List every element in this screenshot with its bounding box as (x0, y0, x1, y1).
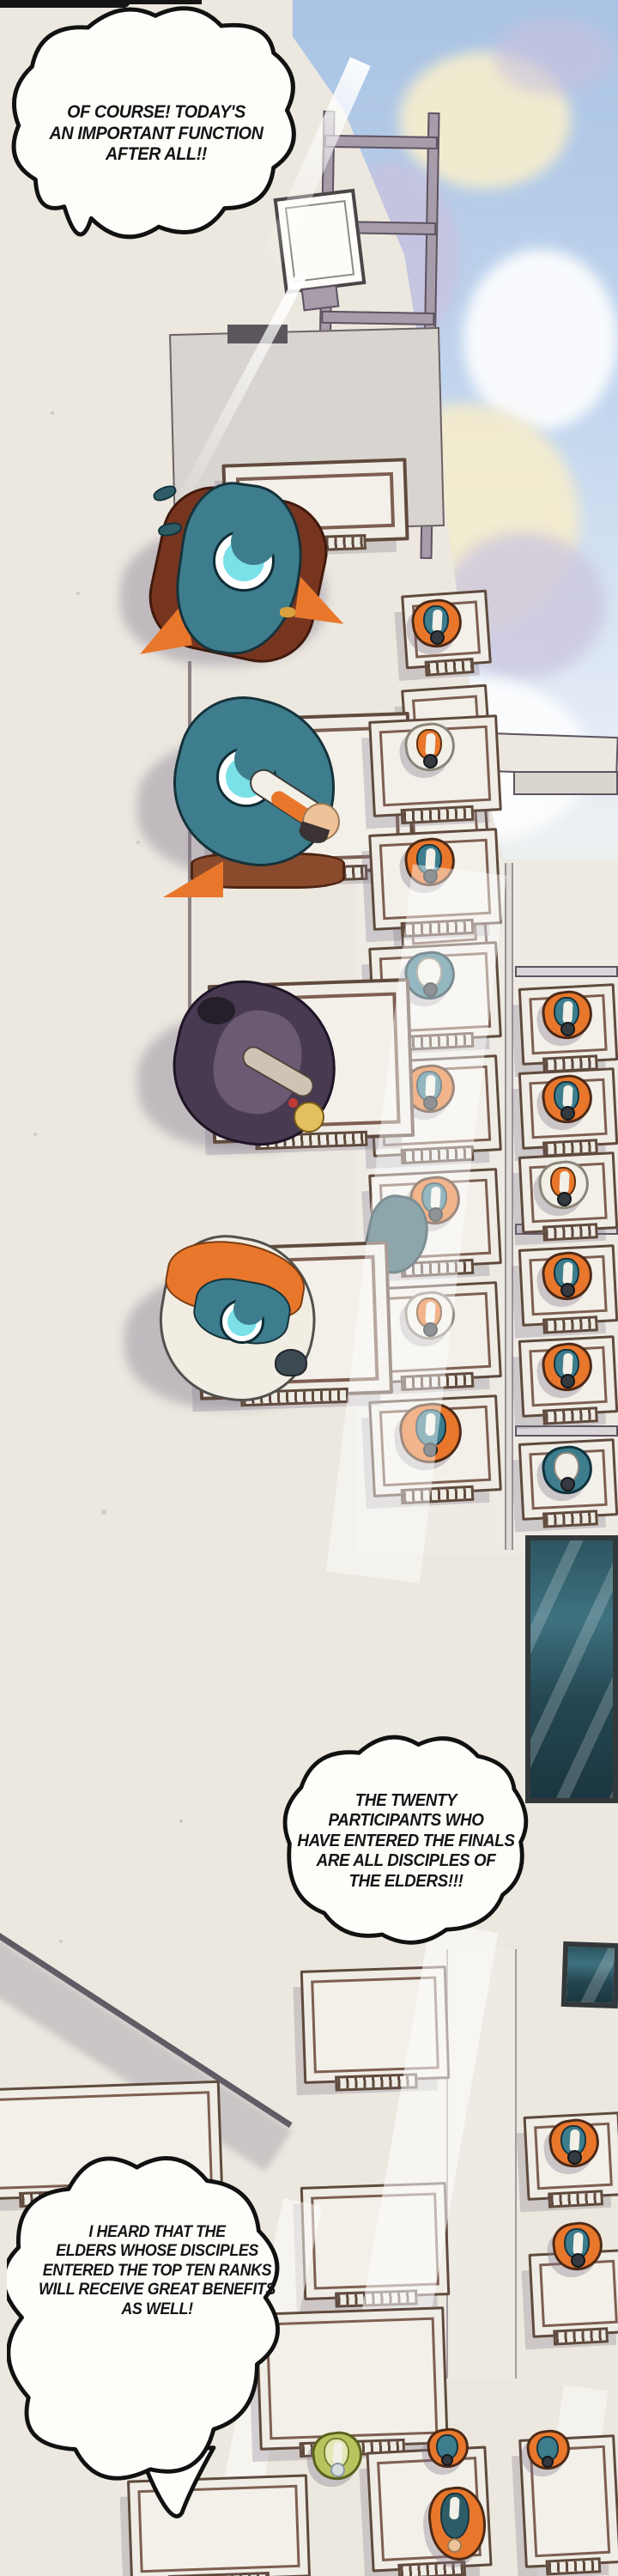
speech-bubble-2: THE TWENTY PARTICIPANTS WHO HAVE ENTERED… (276, 1729, 536, 1965)
tier-beam (515, 966, 618, 977)
figure-stripe (425, 962, 435, 985)
figure-head (560, 1374, 575, 1388)
disciple-figure (527, 2430, 570, 2470)
crescent-emblem (213, 530, 275, 592)
railing-rung (321, 311, 434, 325)
disciple-figure (542, 1446, 592, 1494)
companion-blonde-head (294, 1102, 324, 1133)
tier-beam (515, 1425, 618, 1437)
figure-head (423, 869, 438, 884)
figure-head (560, 1106, 575, 1121)
bubble-line: PARTICIPANTS WHO (329, 1811, 484, 1832)
bubble-line: AS WELL! (121, 2300, 192, 2319)
figure-head (542, 2456, 554, 2468)
railing-rung (324, 135, 438, 149)
disciple-chair (300, 2182, 451, 2300)
figure-head (423, 982, 438, 997)
figure-head (560, 1283, 575, 1297)
figure-head (423, 1096, 438, 1110)
elder-seat-3 (163, 975, 421, 1172)
bubble-line: ARE ALL DISCIPLES OF (317, 1851, 496, 1872)
elder-seat-4 (146, 1232, 403, 1430)
figure-head (560, 1477, 575, 1492)
figure-stripe (430, 1187, 440, 1210)
figure-stripe (569, 2129, 579, 2153)
figure-stripe (562, 1353, 573, 1376)
figure-head (571, 2253, 585, 2268)
bubble-line: I HEARD THAT THE (88, 2223, 225, 2242)
figure-stripe (449, 2497, 459, 2520)
elder-seat-1 (129, 477, 386, 683)
bubble-line: AN IMPORTANT FUNCTION (49, 124, 263, 145)
speech-bubble-1-text: OF COURSE! TODAY'S AN IMPORTANT FUNCTION… (35, 82, 277, 185)
disciple-figure (405, 838, 455, 886)
arena-screen-corner (561, 1941, 618, 2008)
tier-wall-lower (446, 1949, 517, 2379)
bubble-line: OF COURSE! TODAY'S (67, 102, 245, 124)
figure-stripe (432, 610, 442, 633)
figure-stripe (425, 848, 435, 872)
disciple-figure (312, 2432, 362, 2480)
speech-bubble-2-text: THE TWENTY PARTICIPANTS WHO HAVE ENTERED… (291, 1771, 522, 1912)
tier-wall-gap (505, 863, 513, 1550)
figure-stripe (425, 733, 435, 756)
bubble-line: ELDERS WHOSE DISCIPLES (56, 2242, 258, 2261)
bubble-line: WILL RECEIVE GREAT BENEFITS (39, 2281, 276, 2300)
figure-stripe (332, 2442, 342, 2465)
disciple-figure (549, 2119, 599, 2167)
disciple-figure (542, 1075, 592, 1123)
disciple-figure (553, 2222, 603, 2270)
figure-head (441, 2454, 453, 2466)
arena-screen (525, 1535, 618, 1803)
disciple-figure (539, 1161, 589, 1209)
figure-head (330, 2463, 345, 2477)
tier-beam (513, 771, 618, 795)
figure-head (423, 1443, 438, 1457)
disciple-figure (429, 2487, 486, 2561)
cloud (463, 249, 618, 429)
speech-bubble-3: I HEARD THAT THE ELDERS WHOSE DISCIPLES … (7, 2148, 299, 2543)
bubble-line: AFTER ALL!! (106, 144, 207, 166)
figure-head (560, 1022, 575, 1036)
figure-head (430, 630, 445, 645)
gold-ornament (280, 607, 295, 617)
disciple-figure (427, 2428, 469, 2468)
disciple-figure (542, 1343, 592, 1391)
figure-stripe (425, 1413, 435, 1437)
figure-stripe (573, 2233, 583, 2256)
disciple-figure (412, 599, 462, 647)
figure-head (567, 2150, 582, 2165)
bubble-line: THE ELDERS!!! (349, 1872, 463, 1893)
figure-stripe (562, 1085, 573, 1109)
elder-boot (151, 483, 179, 503)
elder-hair (275, 1349, 307, 1376)
crescent-emblem (220, 1299, 264, 1344)
disciple-figure (405, 723, 455, 771)
cloud (494, 17, 614, 94)
figure-head (423, 1322, 438, 1337)
figure-stripe (425, 1075, 435, 1098)
figure-stripe (562, 1456, 573, 1479)
wall-notch (227, 325, 288, 343)
figure-head (447, 2538, 462, 2553)
figure-stripe (562, 1262, 573, 1285)
bubble-line: ENTERED THE TOP TEN RANKS (43, 2262, 271, 2281)
comic-panel: OF COURSE! TODAY'S AN IMPORTANT FUNCTION… (0, 0, 618, 2576)
bubble-line: THE TWENTY (355, 1791, 457, 1812)
disciple-figure (542, 991, 592, 1039)
figure-head (428, 1207, 443, 1222)
placard-bracket (301, 285, 340, 312)
disciple-figure (400, 1403, 462, 1463)
disciple-chair (300, 1965, 451, 2084)
elder-hair-dark (197, 997, 235, 1024)
figure-stripe (559, 1171, 569, 1194)
disciple-figure (542, 1252, 592, 1300)
figure-head (423, 754, 438, 769)
figure-stripe (562, 1001, 573, 1024)
speech-bubble-3-text: I HEARD THAT THE ELDERS WHOSE DISCIPLES … (40, 2198, 275, 2344)
bubble-line: HAVE ENTERED THE FINALS (297, 1832, 514, 1852)
figure-stripe (425, 1302, 435, 1325)
disciple-figure (405, 1291, 455, 1340)
hair-ornament (288, 1098, 298, 1108)
speech-bubble-1: OF COURSE! TODAY'S AN IMPORTANT FUNCTION… (3, 3, 309, 263)
figure-head (557, 1192, 572, 1206)
